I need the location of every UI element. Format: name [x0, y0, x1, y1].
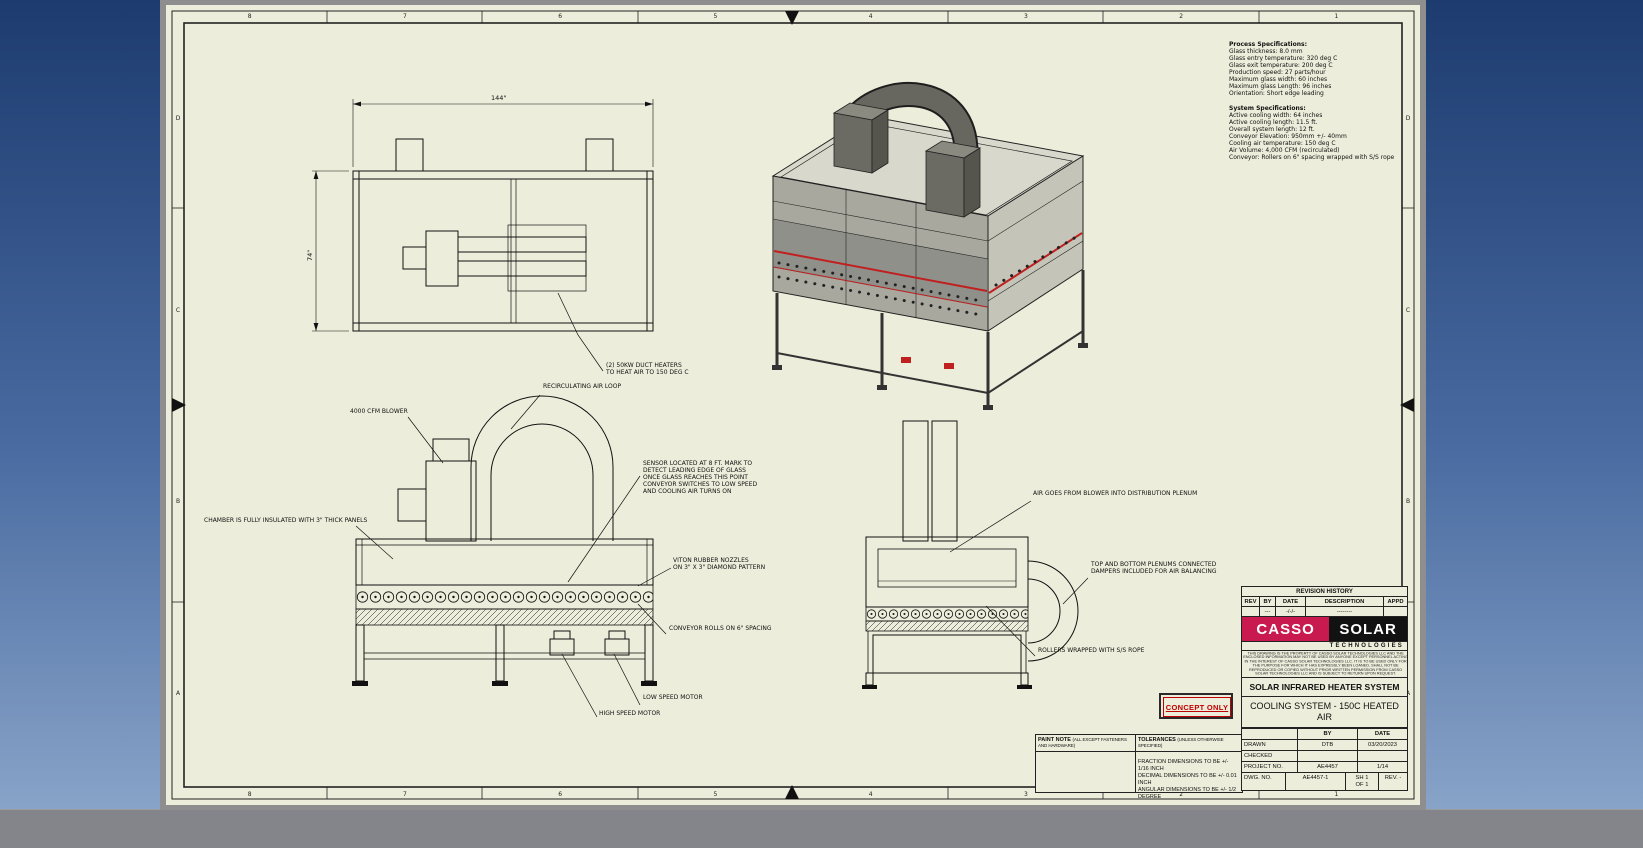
revision-history-table: REVISION HISTORY REV BY DATE DESCRIPTION…	[1241, 586, 1408, 617]
checked-by-value	[1298, 750, 1358, 761]
rev-value: REV. -	[1379, 772, 1407, 790]
system-specs-body: Active cooling width: 64 inches Active c…	[1229, 112, 1407, 161]
legal-note-box: THIS DRAWING IS THE PROPERTY OF CASSO SO…	[1241, 651, 1408, 678]
tolerances-box: TOLERANCES (UNLESS OTHERWISE SPECIFIED) …	[1135, 734, 1243, 793]
checked-label: CHECKED	[1242, 750, 1298, 761]
appd-col-header: APPD	[1384, 597, 1407, 606]
rev-cell	[1242, 607, 1260, 616]
drawing-sheet[interactable]: 87654321 87654321 DCBA DCBA Process Spec…	[166, 5, 1420, 805]
drawn-date-value: 03/20/2023	[1358, 739, 1407, 750]
dimension-plan-length: 144"	[491, 94, 506, 102]
zone-number: 8	[172, 789, 327, 801]
callout-sensor: SENSOR LOCATED AT 8 FT. MARK TO DETECT L…	[643, 460, 757, 495]
drawing-title: COOLING SYSTEM - 150C HEATED AIR	[1241, 697, 1408, 728]
title-block-info: BY DATE DRAWN DTB 03/20/2023 CHECKED PRO…	[1241, 728, 1408, 772]
zone-number: 6	[483, 789, 638, 801]
checked-date-value	[1358, 750, 1407, 761]
taskbar	[0, 809, 1643, 848]
system-title: SOLAR INFRARED HEATER SYSTEM	[1241, 678, 1408, 697]
date-col-header: DATE	[1276, 597, 1306, 606]
by-column-header: BY	[1298, 728, 1358, 739]
description-col-header: DESCRIPTION	[1306, 597, 1384, 606]
paint-note-header: PAINT NOTE (ALL EXCEPT FASTENERS AND HAR…	[1036, 735, 1136, 752]
callout-blower: 4000 CFM BLOWER	[350, 408, 408, 415]
callout-conveyor-rolls: CONVEYOR ROLLS ON 6" SPACING	[669, 625, 771, 632]
dwg-no-label: DWG. NO.	[1242, 772, 1286, 790]
zone-letter: B	[1402, 406, 1414, 598]
zone-number: 5	[638, 11, 793, 23]
info-blank-cell	[1242, 728, 1298, 739]
tolerances-body: FRACTION DIMENSIONS TO BE +/- 1/16 INCH …	[1136, 752, 1242, 801]
revision-history-row: --- -/-/- --------	[1242, 607, 1407, 616]
zone-letter: D	[172, 23, 184, 215]
appd-cell	[1384, 607, 1407, 616]
title-block-dwg-row: DWG. NO. AE4457-1 SH 1 OF 1 REV. -	[1241, 772, 1408, 791]
drawn-label: DRAWN	[1242, 739, 1298, 750]
callout-low-speed-motor: LOW SPEED MOTOR	[643, 694, 703, 701]
zone-letter: C	[172, 215, 184, 407]
drawn-by-value: DTB	[1298, 739, 1358, 750]
zone-letters-left: DCBA	[172, 23, 184, 789]
callout-viton-nozzles: VITON RUBBER NOZZLES ON 3" X 3" DIAMOND …	[673, 557, 765, 571]
rev-col-header: REV	[1242, 597, 1260, 606]
project-scale-value: 1/14	[1358, 761, 1407, 772]
zone-number: 7	[327, 11, 482, 23]
project-no-value: AE4457	[1298, 761, 1358, 772]
callout-air-distribution: AIR GOES FROM BLOWER INTO DISTRIBUTION P…	[1033, 490, 1197, 497]
zone-number: 5	[638, 789, 793, 801]
leader-lines	[356, 293, 1088, 717]
system-specs-title: System Specifications:	[1229, 105, 1407, 112]
description-cell: --------	[1306, 607, 1384, 616]
isometric-view	[772, 94, 1088, 410]
logo-tagline: TECHNOLOGIES	[1241, 642, 1408, 651]
sheet-no-value: SH 1 OF 1	[1346, 772, 1379, 790]
front-elevation	[352, 396, 657, 686]
legal-note-text: THIS DRAWING IS THE PROPERTY OF CASSO SO…	[1242, 651, 1408, 677]
zone-number: 2	[1104, 11, 1259, 23]
zone-letter: C	[1402, 215, 1414, 407]
by-col-header: BY	[1260, 597, 1276, 606]
revision-history-title: REVISION HISTORY	[1242, 587, 1407, 597]
company-logo: CASSO SOLAR	[1241, 617, 1408, 642]
cad-viewport[interactable]: 87654321 87654321 DCBA DCBA Process Spec…	[160, 0, 1426, 810]
process-specs-title: Process Specifications:	[1229, 41, 1407, 48]
logo-casso: CASSO	[1242, 617, 1329, 641]
revision-history-headers: REV BY DATE DESCRIPTION APPD	[1242, 597, 1407, 607]
zone-letter: A	[172, 598, 184, 790]
callout-duct-heaters: (2) 50KW DUCT HEATERS TO HEAT AIR TO 150…	[606, 362, 689, 376]
stamp-text: CONCEPT ONLY	[1166, 703, 1229, 712]
callout-rollers-rope: ROLLERS WRAPPED WITH S/S ROPE	[1038, 647, 1144, 654]
zone-letter: B	[172, 406, 184, 598]
callout-plenums: TOP AND BOTTOM PLENUMS CONNECTED DAMPERS…	[1091, 561, 1217, 575]
callout-chamber-insulation: CHAMBER IS FULLY INSULATED WITH 3" THICK…	[204, 517, 367, 524]
dimension-plan-width: 74"	[306, 250, 314, 261]
plan-view	[353, 139, 653, 331]
stamp-inner-border: CONCEPT ONLY	[1163, 697, 1231, 717]
callout-recirculating-air-loop: RECIRCULATING AIR LOOP	[543, 383, 621, 390]
concept-only-stamp: CONCEPT ONLY	[1159, 693, 1233, 719]
desktop: 87654321 87654321 DCBA DCBA Process Spec…	[0, 0, 1643, 848]
zone-number: 8	[172, 11, 327, 23]
by-cell: ---	[1260, 607, 1276, 616]
project-no-label: PROJECT NO.	[1242, 761, 1298, 772]
paint-note-box: PAINT NOTE (ALL EXCEPT FASTENERS AND HAR…	[1035, 734, 1137, 793]
title-block: REVISION HISTORY REV BY DATE DESCRIPTION…	[1241, 586, 1408, 791]
date-column-header: DATE	[1358, 728, 1407, 739]
zone-number: 4	[793, 11, 948, 23]
spec-notes: Process Specifications: Glass thickness:…	[1229, 41, 1407, 169]
date-cell: -/-/-	[1276, 607, 1306, 616]
zone-numbers-top: 87654321	[172, 11, 1414, 23]
dimension-lines	[312, 99, 653, 331]
callout-high-speed-motor: HIGH SPEED MOTOR	[599, 710, 660, 717]
tolerances-header: TOLERANCES (UNLESS OTHERWISE SPECIFIED)	[1136, 735, 1242, 752]
zone-number: 1	[1259, 11, 1414, 23]
zone-number: 6	[483, 11, 638, 23]
dwg-no-value: AE4457-1	[1286, 772, 1346, 790]
logo-solar: SOLAR	[1329, 617, 1407, 641]
process-specs-body: Glass thickness: 8.0 mm Glass entry temp…	[1229, 48, 1407, 97]
zone-number: 4	[793, 789, 948, 801]
zone-number: 7	[327, 789, 482, 801]
zone-number: 3	[948, 11, 1103, 23]
